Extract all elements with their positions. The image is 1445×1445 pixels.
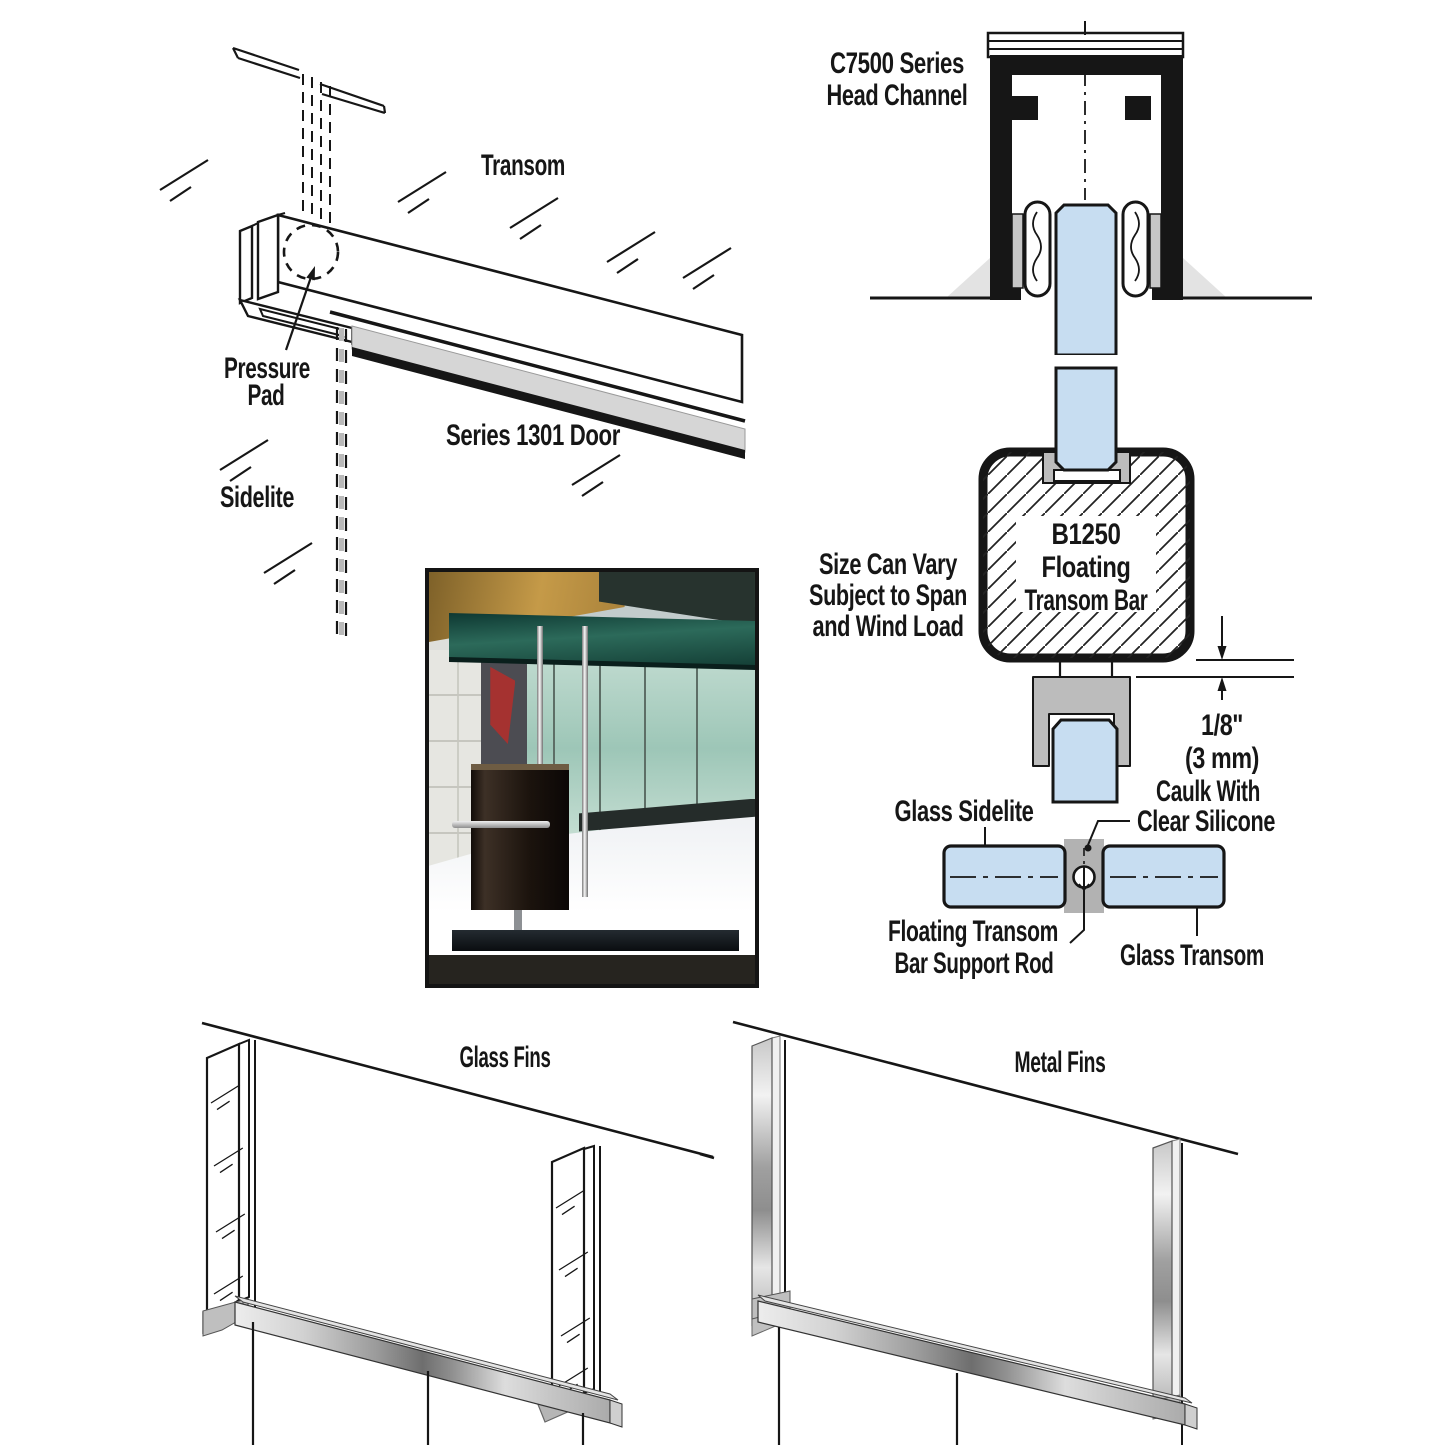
glass-fins-diagram: Glass Fins <box>150 1012 760 1445</box>
glass-transom-panel <box>1048 205 1124 470</box>
dimension-label-line2: (3 mm) <box>1185 742 1259 775</box>
photo-door-handle <box>452 821 550 828</box>
bar-label-line3: Transom Bar <box>1025 584 1149 617</box>
bar-label-line2: Floating <box>1042 551 1131 584</box>
size-note-line1: Size Can Vary <box>819 548 958 581</box>
installation-photo <box>425 568 759 988</box>
cross-section-diagram: C7500 Series Head Channel Size Can Vary … <box>790 15 1360 985</box>
clamp-fitting <box>1033 677 1130 802</box>
support-rod-label-line2: Bar Support Rod <box>895 947 1054 980</box>
series-door-label: Series 1301 Door <box>446 419 621 452</box>
support-rod-label-line1: Floating Transom <box>888 915 1058 948</box>
metal-fins-label: Metal Fins <box>1015 1046 1106 1079</box>
vinyl-gasket-right <box>1123 202 1148 296</box>
dimension-label-line1: 1/8" <box>1201 709 1243 742</box>
ceiling-edge <box>202 1023 713 1157</box>
metal-fin-left <box>752 1036 785 1336</box>
setting-block <box>1054 470 1120 481</box>
photo-door-stile <box>582 626 588 898</box>
glass-transom-label: Glass Transom <box>1120 939 1264 972</box>
caulk-label-line2: Clear Silicone <box>1137 805 1275 838</box>
photo-red-accent <box>490 667 515 744</box>
metal-fins-diagram: Metal Fins <box>700 1012 1345 1445</box>
caulk-label-line1: Caulk With <box>1156 775 1260 808</box>
transom-label: Transom <box>481 149 565 182</box>
photo-door-bottom-rail <box>452 930 739 951</box>
vinyl-gasket-left <box>1025 202 1050 296</box>
glass-sidelite-label: Glass Sidelite <box>895 795 1034 828</box>
head-channel-label-line2: Head Channel <box>827 79 968 112</box>
ceiling-edge <box>700 1022 1238 1158</box>
sidelite-label: Sidelite <box>220 481 294 514</box>
glass-fin-left <box>203 1040 255 1333</box>
head-channel-label-line1: C7500 Series <box>830 47 964 80</box>
isometric-transom-diagram: Transom Pressure Pad Series 1301 Door Si… <box>100 15 770 560</box>
catalog-page: Transom Pressure Pad Series 1301 Door Si… <box>0 0 1445 1445</box>
photo-cabinet <box>471 770 569 910</box>
transom-glass-edge <box>233 48 385 225</box>
photo-floor-base <box>429 955 755 984</box>
size-note-line2: Subject to Span <box>809 579 967 612</box>
pressure-pad-label-line2: Pad <box>248 379 285 412</box>
size-note-line3: and Wind Load <box>813 610 964 643</box>
sidelite-glass-edge <box>337 327 346 640</box>
transom-bar-perspective <box>752 1291 1197 1429</box>
bar-label-line1: B1250 <box>1052 518 1121 551</box>
glass-fins-label: Glass Fins <box>460 1041 551 1074</box>
